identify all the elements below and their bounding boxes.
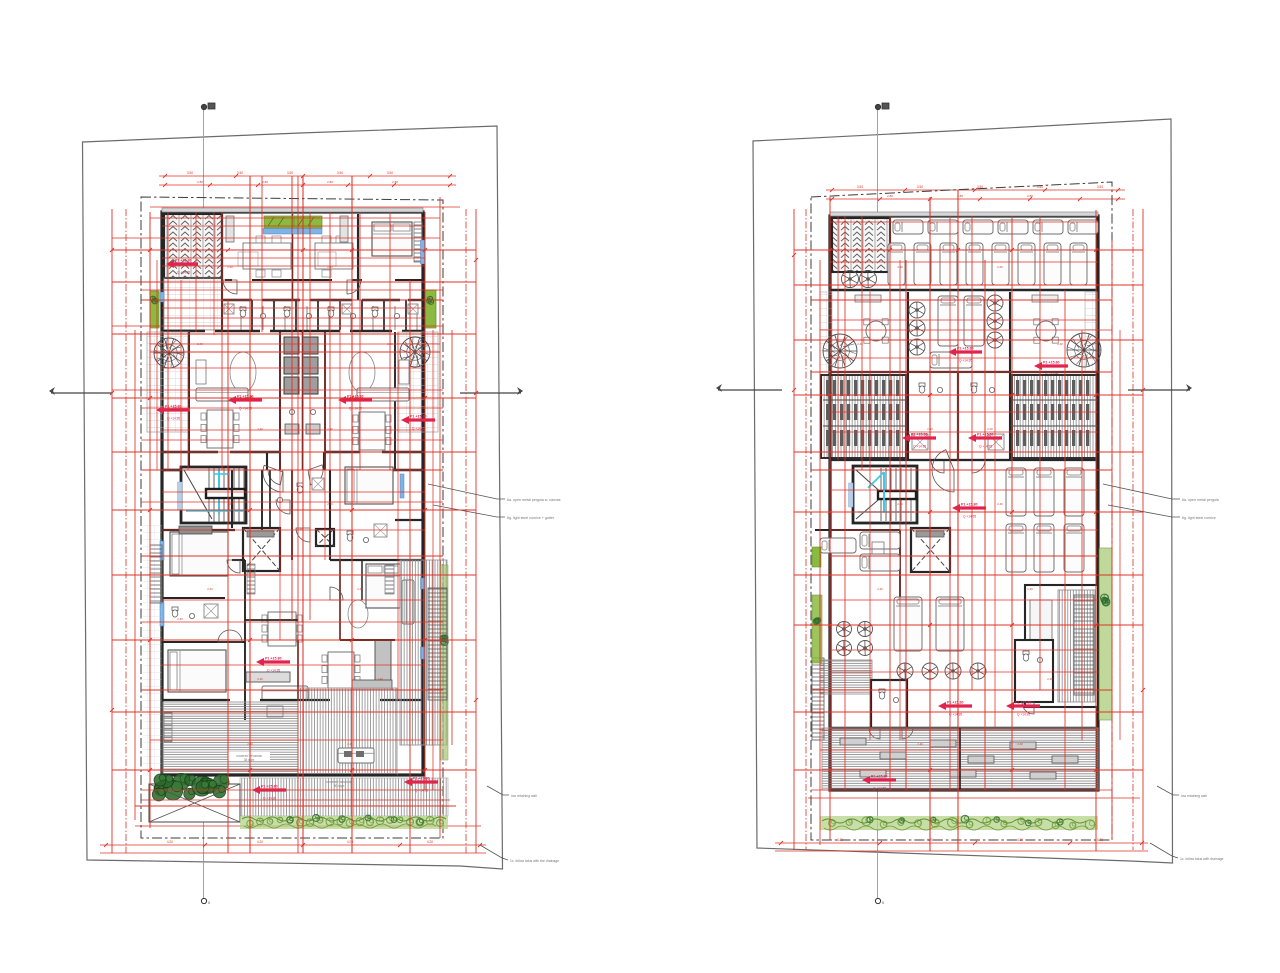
svg-text:6a. open metal pergola: 6a. open metal pergola — [1182, 498, 1219, 502]
svg-text:P1 +15.80: P1 +15.80 — [957, 347, 974, 351]
svg-text:2.80: 2.80 — [1027, 194, 1033, 198]
svg-text:Q +14.95: Q +14.95 — [913, 445, 926, 449]
svg-text:Q +14.95: Q +14.95 — [959, 359, 972, 363]
svg-text:P1 +15.80: P1 +15.80 — [265, 657, 282, 661]
svg-text:2.40: 2.40 — [877, 587, 883, 591]
svg-text:2.40: 2.40 — [927, 427, 933, 431]
svg-text:2.40: 2.40 — [357, 587, 363, 591]
svg-text:2.40: 2.40 — [377, 677, 383, 681]
svg-text:2.40: 2.40 — [247, 742, 253, 746]
svg-text:P1 +15.80: P1 +15.80 — [175, 259, 192, 263]
svg-text:35 sqm: 35 sqm — [244, 758, 255, 762]
svg-text:6g. light steel cornice: 6g. light steel cornice — [1182, 516, 1216, 520]
svg-text:Q +14.95: Q +14.95 — [267, 669, 280, 673]
svg-text:2.40: 2.40 — [1057, 342, 1063, 346]
svg-text:2.40: 2.40 — [327, 265, 333, 269]
svg-text:2.40: 2.40 — [917, 742, 923, 746]
svg-text:4.20: 4.20 — [257, 840, 263, 844]
svg-text:Q +14.95: Q +14.95 — [1017, 713, 1030, 717]
svg-text:2.40: 2.40 — [347, 742, 353, 746]
svg-text:2.40: 2.40 — [387, 342, 393, 346]
svg-text:P1 +15.80: P1 +15.80 — [871, 775, 888, 779]
svg-text:6g. light steel cornice + gutt: 6g. light steel cornice + gutter — [507, 516, 555, 520]
svg-text:low retaining wall: low retaining wall — [511, 794, 537, 798]
svg-text:2.40: 2.40 — [897, 502, 903, 506]
svg-text:1c. follow talus with the drai: 1c. follow talus with the drainage — [510, 859, 559, 863]
svg-text:3.50: 3.50 — [857, 185, 863, 189]
svg-text:Q +14.95: Q +14.95 — [963, 515, 976, 519]
svg-text:2.40: 2.40 — [997, 265, 1003, 269]
svg-text:3.50: 3.50 — [387, 171, 393, 175]
svg-text:2.40: 2.40 — [327, 427, 333, 431]
svg-text:2.40: 2.40 — [257, 677, 263, 681]
svg-text:Q +14.95: Q +14.95 — [949, 713, 962, 717]
svg-text:2.40: 2.40 — [1047, 677, 1053, 681]
svg-text:3.50: 3.50 — [1097, 185, 1103, 189]
svg-text:2.80: 2.80 — [392, 180, 398, 184]
svg-text:3.50: 3.50 — [237, 171, 243, 175]
svg-text:2.40: 2.40 — [997, 502, 1003, 506]
svg-text:2.80: 2.80 — [327, 180, 333, 184]
svg-text:2.40: 2.40 — [857, 342, 863, 346]
svg-text:P1 +15.80: P1 +15.80 — [1015, 701, 1032, 705]
svg-text:P1 +15.80: P1 +15.80 — [413, 777, 430, 781]
svg-text:P1 +15.80: P1 +15.80 — [911, 433, 928, 437]
svg-text:3.50: 3.50 — [287, 171, 293, 175]
svg-text:low retaining wall: low retaining wall — [1181, 794, 1207, 798]
svg-text:Q +14.95: Q +14.95 — [177, 271, 190, 275]
svg-text:Q +14.95: Q +14.95 — [415, 789, 428, 793]
svg-text:2.40: 2.40 — [927, 677, 933, 681]
svg-text:P1 +15.80: P1 +15.80 — [1043, 361, 1060, 365]
svg-text:2.40: 2.40 — [297, 527, 303, 531]
svg-text:2.80: 2.80 — [887, 194, 893, 198]
svg-text:6a. open metal pergola w. canv: 6a. open metal pergola w. canvas — [507, 498, 561, 502]
svg-text:2.40: 2.40 — [227, 265, 233, 269]
svg-text:3.50: 3.50 — [187, 171, 193, 175]
svg-text:2.40: 2.40 — [227, 502, 233, 506]
svg-text:P1 +15.80: P1 +15.80 — [961, 503, 978, 507]
svg-text:3.50: 3.50 — [917, 185, 923, 189]
svg-text:2.40: 2.40 — [257, 427, 263, 431]
svg-text:2.40: 2.40 — [207, 587, 213, 591]
svg-text:2.40: 2.40 — [197, 342, 203, 346]
svg-text:P1 +15.80: P1 +15.80 — [410, 415, 427, 419]
svg-text:2.40: 2.40 — [1017, 742, 1023, 746]
svg-text:2.40: 2.40 — [897, 265, 903, 269]
svg-text:2.40: 2.40 — [177, 617, 183, 621]
svg-text:Q +14.95: Q +14.95 — [979, 445, 992, 449]
svg-text:2.80: 2.80 — [262, 180, 268, 184]
svg-text:P1 +15.80: P1 +15.80 — [947, 701, 964, 705]
svg-text:2.40: 2.40 — [327, 502, 333, 506]
svg-text:P1 +15.80: P1 +15.80 — [261, 785, 278, 789]
svg-text:2.40: 2.40 — [1027, 587, 1033, 591]
svg-text:3.50: 3.50 — [337, 171, 343, 175]
svg-text:1c. follow talus with drainage: 1c. follow talus with drainage — [1180, 857, 1223, 861]
svg-text:Q +14.95: Q +14.95 — [167, 417, 180, 421]
svg-text:2.40: 2.40 — [987, 427, 993, 431]
svg-text:4.20: 4.20 — [167, 840, 173, 844]
svg-text:4.20: 4.20 — [427, 840, 433, 844]
svg-text:2.80: 2.80 — [197, 180, 203, 184]
